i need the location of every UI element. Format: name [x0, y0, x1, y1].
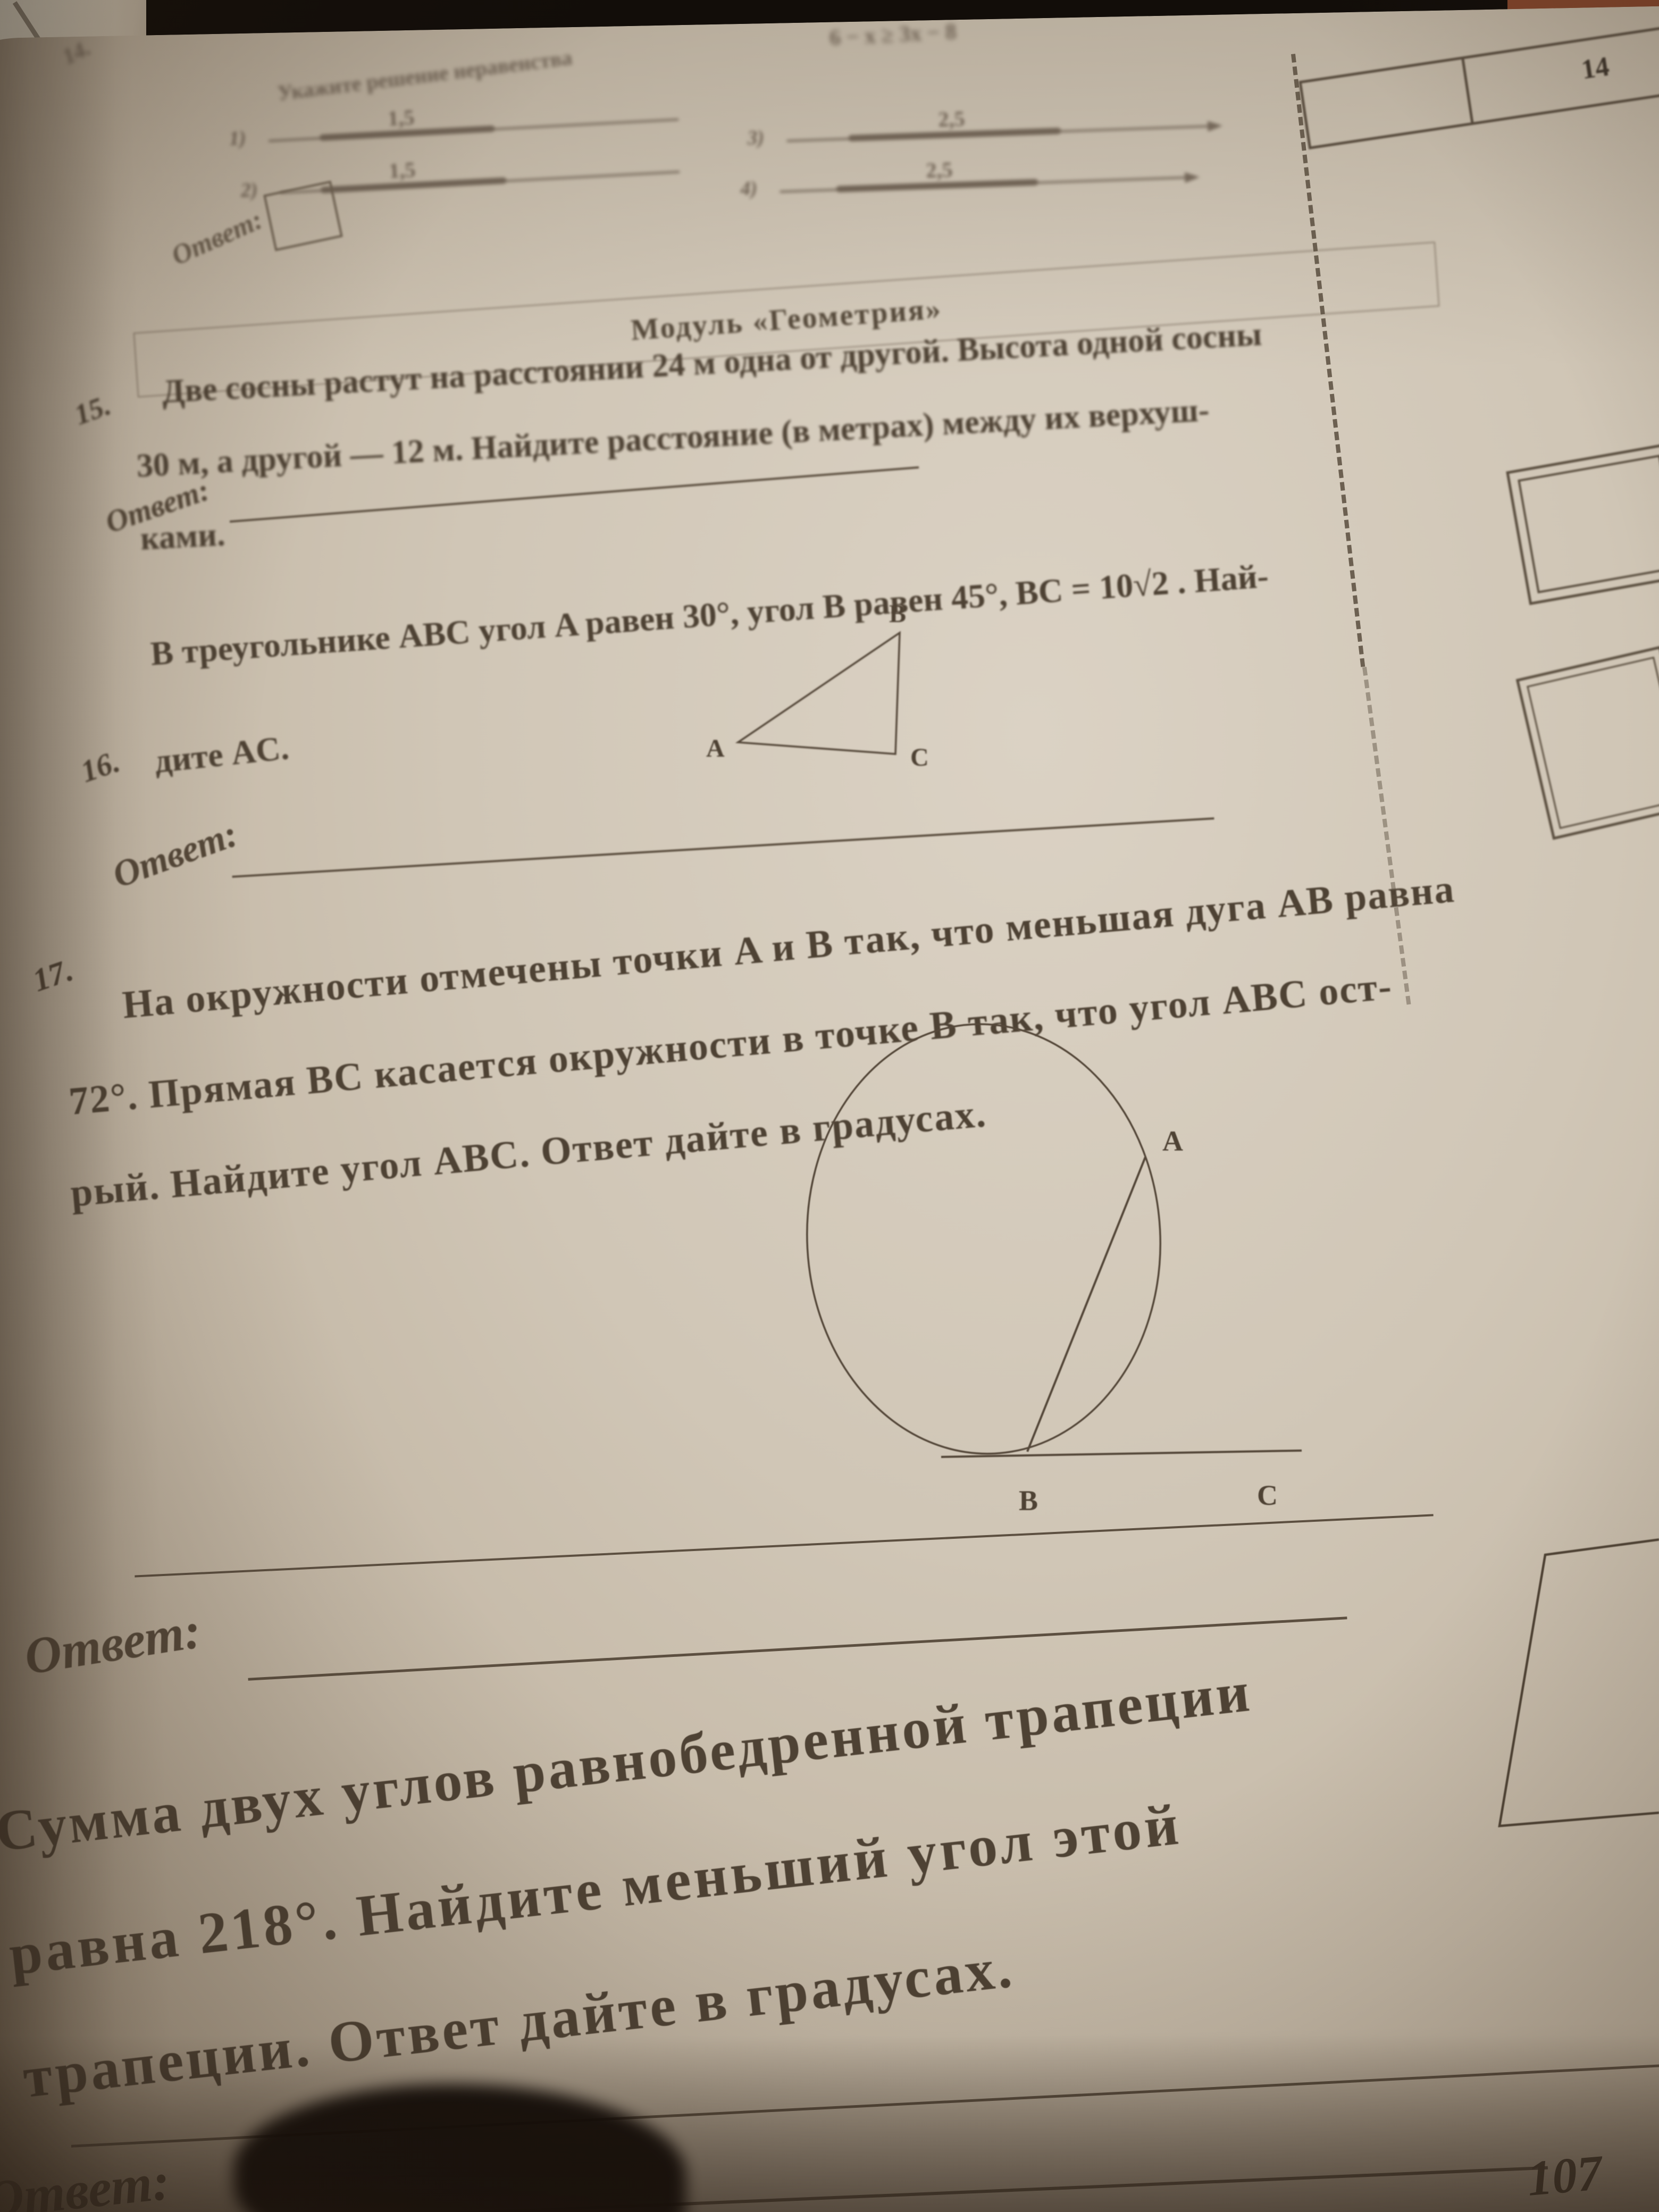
- photo-of-textbook-page: 14. Укажите решение неравенства 6 − x ≥ …: [0, 0, 1659, 2212]
- arrowhead-icon: [1208, 121, 1223, 132]
- option-marker: 2): [240, 178, 258, 203]
- page-number: 107: [1525, 2144, 1605, 2208]
- margin-answer-box-1: [1506, 443, 1659, 605]
- circle-label-c: C: [1257, 1479, 1278, 1511]
- triangle-label-c: C: [910, 743, 929, 772]
- option-marker: 4): [740, 177, 758, 200]
- circle-label-b: B: [1019, 1485, 1038, 1516]
- variant-tab-divider: [1461, 59, 1473, 122]
- margin-answer-box-2-inner: [1527, 657, 1659, 829]
- trapezoid-diagram: [1478, 1522, 1659, 1851]
- option-marker: 1): [229, 126, 247, 150]
- point-label: 2,5: [938, 106, 966, 132]
- circle-shape: [796, 1015, 1171, 1463]
- point-label: 1,5: [387, 105, 415, 131]
- trapezoid-shape: [1499, 1538, 1659, 1826]
- chord-ab: [1027, 1157, 1145, 1452]
- triangle-diagram: A B C: [697, 594, 994, 791]
- arrowhead-icon: [1185, 172, 1200, 183]
- triangle-shape: [738, 633, 900, 754]
- point-label: 2,5: [926, 157, 953, 183]
- variant-tab-number: 14: [1579, 51, 1611, 86]
- circle-label-a: A: [1162, 1125, 1183, 1157]
- circle-tangent-diagram: A B C: [760, 1001, 1372, 1538]
- triangle-label-b: B: [889, 600, 906, 628]
- margin-answer-box-1-inner: [1518, 455, 1659, 593]
- option-marker: 3): [747, 126, 765, 150]
- point-label: 1,5: [388, 157, 416, 183]
- triangle-label-a: A: [706, 734, 725, 763]
